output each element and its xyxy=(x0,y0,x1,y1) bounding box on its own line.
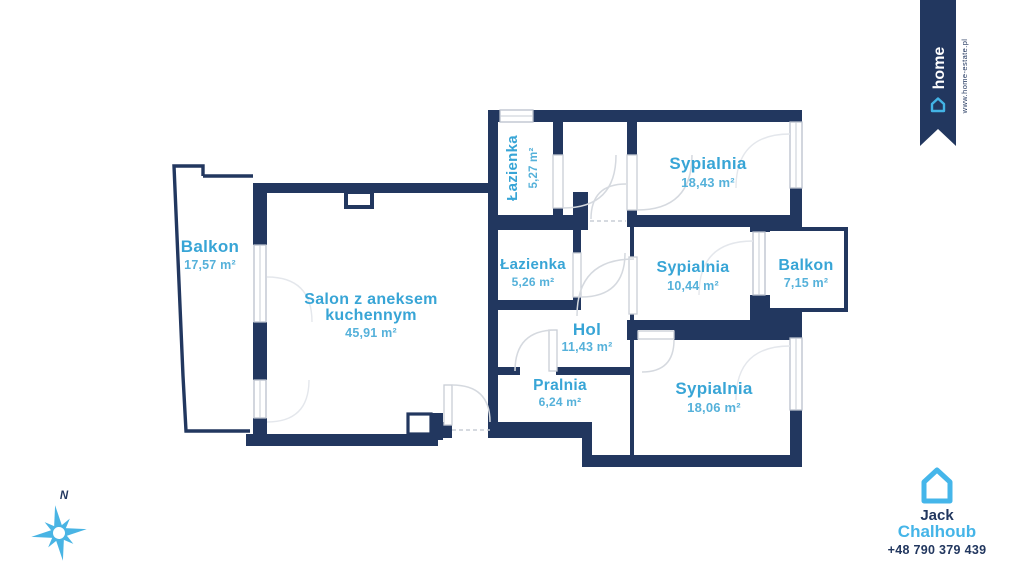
door-bedroom2 xyxy=(577,257,637,316)
brand-website: www.home-estate.pl xyxy=(960,39,969,115)
label-hol: Hol xyxy=(573,320,601,339)
area-sypialnia-2: 10,44 m² xyxy=(667,279,719,293)
area-balkon-right: 7,15 m² xyxy=(784,276,828,290)
area-lazienka-top: 5,27 m² xyxy=(528,147,540,188)
window-salon-2 xyxy=(254,380,266,418)
label-balkon-left: Balkon xyxy=(181,237,239,256)
brand-ribbon: home www.home-estate.pl xyxy=(920,0,969,146)
swing-salon-balcony-2 xyxy=(267,380,309,422)
label-sypialnia-1: Sypialnia xyxy=(669,154,747,173)
door-laundry xyxy=(515,330,557,371)
opening-corridor-hall xyxy=(591,184,626,219)
balcony-left-outline xyxy=(174,166,253,431)
label-salon-line2: kuchennym xyxy=(325,307,417,324)
wall-niche xyxy=(408,414,431,434)
house-icon xyxy=(924,470,950,501)
area-salon: 45,91 m² xyxy=(345,326,397,340)
area-pralnia: 6,24 m² xyxy=(539,395,582,409)
door-bedroom3 xyxy=(638,331,674,372)
floor-plan-page: Balkon 17,57 m² Salon z aneksem kuchenny… xyxy=(0,0,1024,576)
window-bedroom3 xyxy=(790,338,802,410)
label-salon-line1: Salon z aneksem xyxy=(304,291,437,308)
window-bathroom-top xyxy=(500,110,533,122)
door-entrance xyxy=(444,385,490,425)
agent-block: Jack Chalhoub +48 790 379 439 xyxy=(888,470,987,557)
wall-shaft-notch xyxy=(346,192,372,207)
compass-rose-icon xyxy=(27,501,90,564)
window-balcony-door xyxy=(753,232,765,295)
agent-last-name: Chalhoub xyxy=(898,522,976,541)
brand-logo-text: home xyxy=(931,47,948,90)
window-salon-1 xyxy=(254,245,266,322)
agent-phone: +48 790 379 439 xyxy=(888,543,987,557)
area-sypialnia-3: 18,06 m² xyxy=(687,400,741,415)
area-balkon-left: 17,57 m² xyxy=(184,258,236,272)
label-lazienka-top: Łazienka xyxy=(504,135,521,201)
label-sypialnia-3: Sypialnia xyxy=(675,379,753,398)
label-sypialnia-2: Sypialnia xyxy=(657,259,730,276)
window-bedroom1 xyxy=(790,122,802,188)
floor-plan-canvas: Balkon 17,57 m² Salon z aneksem kuchenny… xyxy=(0,0,1024,576)
label-pralnia: Pralnia xyxy=(533,377,587,394)
compass-north-label: N xyxy=(60,490,69,502)
label-lazienka-2: Łazienka xyxy=(500,256,566,273)
area-sypialnia-1: 18,43 m² xyxy=(681,175,735,190)
compass: N xyxy=(27,490,90,565)
label-balkon-right: Balkon xyxy=(778,257,833,274)
area-hol: 11,43 m² xyxy=(562,340,613,354)
area-lazienka-2: 5,26 m² xyxy=(512,275,555,289)
